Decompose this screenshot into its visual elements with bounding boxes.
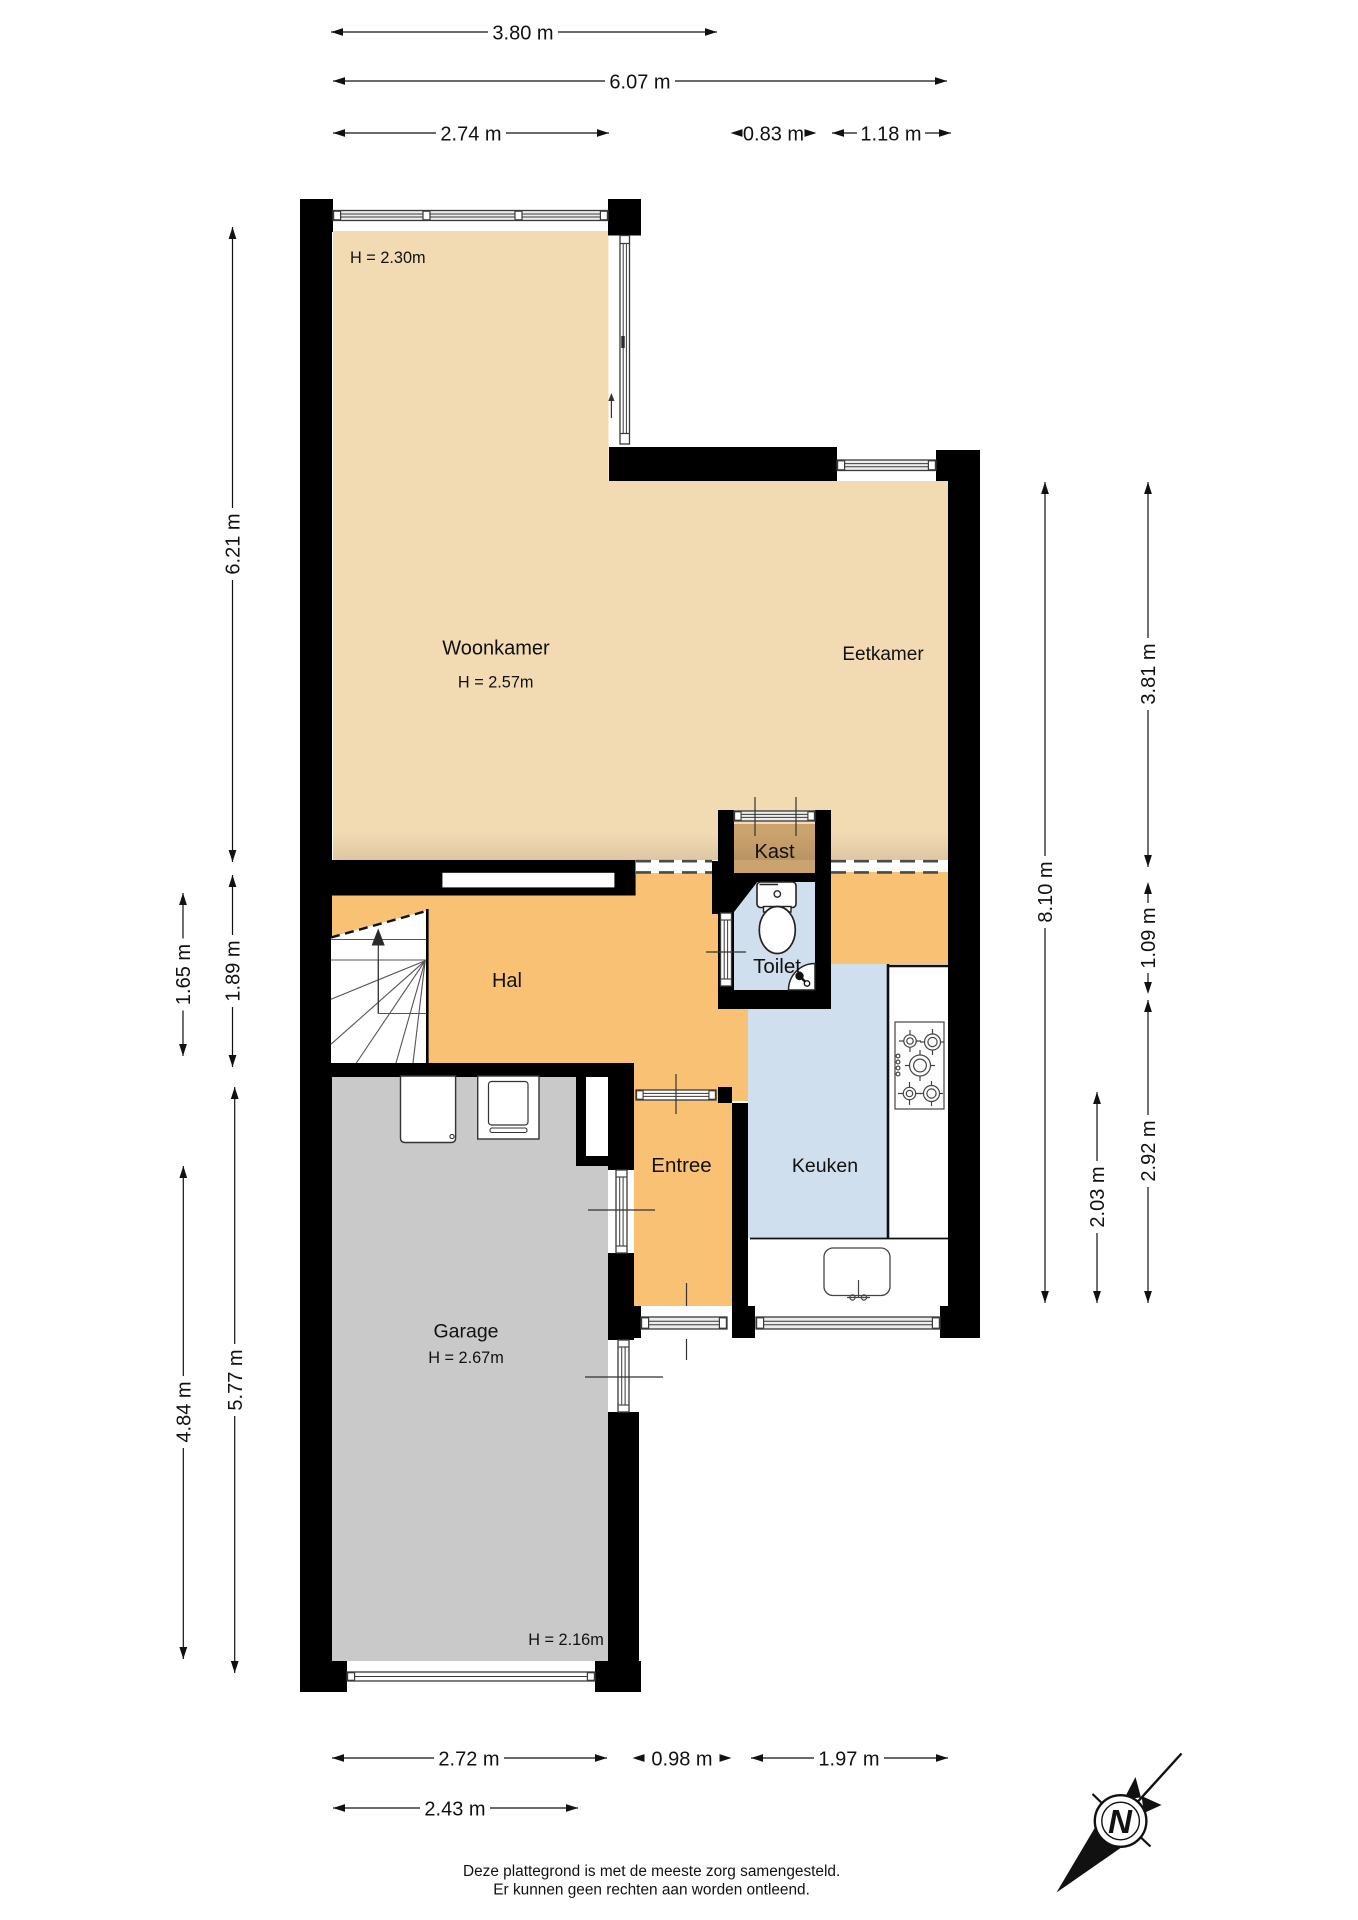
svg-text:5.77 m: 5.77 m [225,1349,247,1410]
svg-text:Er kunnen geen rechten aan wor: Er kunnen geen rechten aan worden ontlee… [493,1882,810,1899]
svg-text:0.98 m: 0.98 m [651,1748,712,1770]
svg-text:H = 2.16m: H = 2.16m [528,1631,604,1649]
svg-text:Toilet: Toilet [753,955,801,978]
svg-text:2.43 m: 2.43 m [424,1798,485,1820]
svg-text:2.74 m: 2.74 m [440,123,501,145]
svg-text:3.80 m: 3.80 m [492,22,553,44]
svg-text:8.10 m: 8.10 m [1035,861,1057,922]
svg-text:1.65 m: 1.65 m [173,944,195,1005]
svg-text:Garage: Garage [433,1321,498,1343]
svg-text:Woonkamer: Woonkamer [442,638,550,660]
svg-text:4.84 m: 4.84 m [174,1381,196,1442]
svg-text:Deze plattegrond is met de mee: Deze plattegrond is met de meeste zorg s… [463,1863,840,1880]
svg-text:H = 2.67m: H = 2.67m [428,1349,504,1367]
svg-text:Hal: Hal [492,970,522,992]
svg-text:Eetkamer: Eetkamer [842,644,924,665]
svg-text:3.81 m: 3.81 m [1138,643,1160,704]
svg-text:1.18 m: 1.18 m [860,123,921,145]
svg-text:H = 2.57m: H = 2.57m [458,674,534,692]
svg-text:Keuken: Keuken [792,1155,858,1177]
svg-text:1.97 m: 1.97 m [818,1748,879,1770]
svg-text:Kast: Kast [754,841,794,863]
svg-text:1.89 m: 1.89 m [223,940,245,1001]
svg-text:H = 2.30m: H = 2.30m [350,249,426,267]
svg-text:Entree: Entree [651,1154,711,1177]
svg-text:0.83 m: 0.83 m [743,123,804,145]
svg-text:N: N [1108,1803,1133,1840]
svg-text:1.09 m: 1.09 m [1138,907,1160,968]
svg-text:2.72 m: 2.72 m [438,1748,499,1770]
svg-text:6.07 m: 6.07 m [609,71,670,93]
svg-text:6.21 m: 6.21 m [223,513,245,574]
svg-text:2.03 m: 2.03 m [1087,1166,1109,1227]
svg-text:2.92 m: 2.92 m [1138,1120,1160,1181]
